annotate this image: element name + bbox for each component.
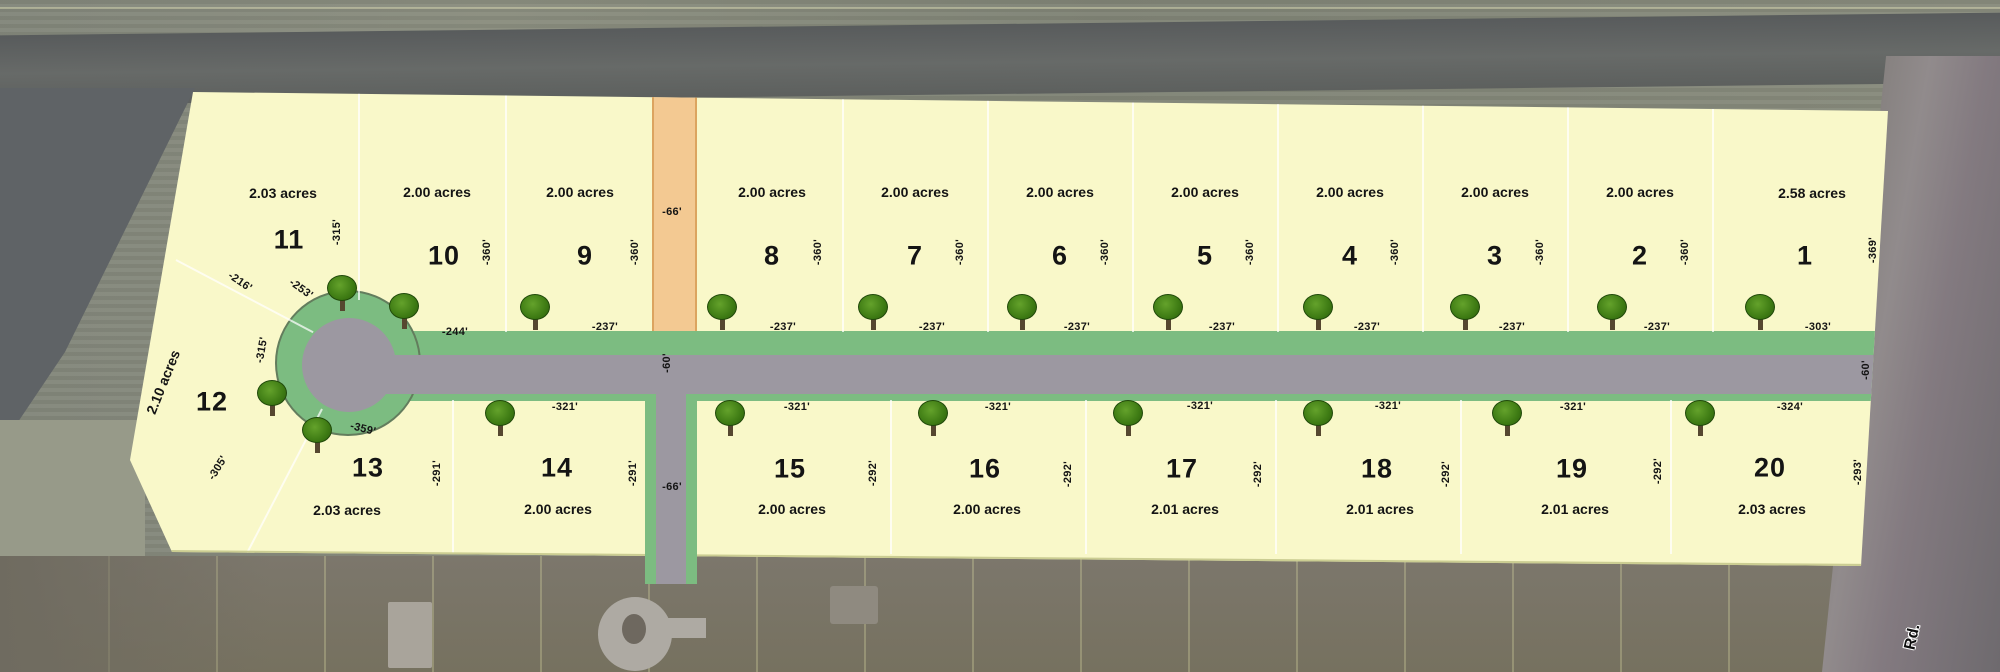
tree-canopy (257, 380, 287, 406)
tree-canopy (389, 293, 419, 319)
lot-19-frontage-dim: -321' (1560, 401, 1586, 413)
lot-17-acres: 2.01 acres (1151, 501, 1219, 517)
lot-18-number: 18 (1361, 454, 1393, 485)
lot-8-acres: 2.00 acres (738, 184, 806, 200)
plat-map: -66' -66' -60' -60' 12 2.10 acres -315' … (0, 0, 2000, 672)
field-boundary-line (0, 7, 2000, 9)
lot-15-number: 15 (774, 454, 806, 485)
lot-1-acres: 2.58 acres (1778, 185, 1846, 201)
lot-3-depth-dim: -360' (1534, 239, 1546, 265)
lot-20-number: 20 (1754, 453, 1786, 484)
lot-boundary-line (987, 90, 989, 332)
lot-1-depth-dim: -369' (1867, 237, 1879, 263)
lot-20-side-dim: -293' (1852, 459, 1864, 485)
aerial-building (622, 614, 646, 644)
lot-15-frontage-dim: -321' (784, 401, 810, 413)
tree-canopy (1597, 294, 1627, 320)
tree-canopy (858, 294, 888, 320)
pavement-width-dim: -60' (661, 353, 673, 373)
lot-5-frontage-dim: -237' (1209, 321, 1235, 333)
lot-6-depth-dim: -360' (1099, 239, 1111, 265)
lot-18-acres: 2.01 acres (1346, 501, 1414, 517)
lot-9-frontage-dim: -237' (592, 321, 618, 333)
lot-9-number: 9 (577, 241, 593, 272)
lot-1-number: 1 (1797, 241, 1813, 272)
lot-boundary-line (1275, 400, 1277, 554)
lot-5-depth-dim: -360' (1244, 239, 1256, 265)
lot-4-acres: 2.00 acres (1316, 184, 1384, 200)
lot-17-frontage-dim: -321' (1187, 400, 1213, 412)
aerial-building (830, 586, 878, 624)
lot-19-number: 19 (1556, 454, 1588, 485)
tree-canopy (327, 275, 357, 301)
lot-boundary-line (1460, 400, 1462, 554)
lot-14-acres: 2.00 acres (524, 501, 592, 517)
lot-6-frontage-dim: -237' (1064, 321, 1090, 333)
lot-5-number: 5 (1197, 241, 1213, 272)
tree-canopy (1450, 294, 1480, 320)
lot-18-frontage-dim: -321' (1375, 400, 1401, 412)
lot-boundary-line (452, 400, 454, 554)
lot-17-side-dim: -292' (1252, 461, 1264, 487)
lot-boundary-line (1567, 90, 1569, 332)
lot-13-side-dim: -291' (431, 460, 443, 486)
lot-15-acres: 2.00 acres (758, 501, 826, 517)
tree-canopy (1685, 400, 1715, 426)
lot-3-acres: 2.00 acres (1461, 184, 1529, 200)
lot-boundary-line (1670, 400, 1672, 554)
lot-boundary-line (842, 90, 844, 332)
lot-4-number: 4 (1342, 241, 1358, 272)
future-road-width-dim: -66' (662, 206, 682, 218)
lot-18-side-dim: -292' (1440, 461, 1452, 487)
lot-20-frontage-dim: -324' (1777, 401, 1803, 413)
aerial-building (388, 602, 432, 668)
lot-boundary-line (176, 259, 314, 333)
tree-canopy (1303, 400, 1333, 426)
lot-3-frontage-dim: -237' (1499, 321, 1525, 333)
lot-13-number: 13 (352, 453, 384, 484)
lot-boundary-line (1085, 400, 1087, 554)
lot-9-depth-dim: -360' (629, 239, 641, 265)
lot-16-side-dim: -292' (1062, 461, 1074, 487)
lot-boundary-line (1422, 90, 1424, 332)
lot-7-acres: 2.00 acres (881, 184, 949, 200)
lot-boundary-line (1132, 90, 1134, 332)
lot-1-frontage-dim: -303' (1805, 321, 1831, 333)
pavement-width-dim-east: -60' (1860, 360, 1872, 380)
lot-2-frontage-dim: -237' (1644, 321, 1670, 333)
tree-canopy (707, 294, 737, 320)
lot-10-depth-dim: -360' (481, 239, 493, 265)
tree-canopy (1153, 294, 1183, 320)
lot-boundary-line (890, 400, 892, 554)
lot-7-depth-dim: -360' (954, 239, 966, 265)
lot-13-acres: 2.03 acres (313, 502, 381, 518)
tree-canopy (1007, 294, 1037, 320)
tree-canopy (485, 400, 515, 426)
south-road-width-dim: -66' (662, 481, 682, 493)
lot-12-number: 12 (196, 387, 228, 418)
lot-10-number: 10 (428, 241, 460, 272)
lot-boundary-line (1712, 90, 1714, 332)
aerial-bottom-field (0, 556, 2000, 672)
lot-2-depth-dim: -360' (1679, 239, 1691, 265)
lot-17-number: 17 (1166, 454, 1198, 485)
tree-canopy (302, 417, 332, 443)
lot-5-acres: 2.00 acres (1171, 184, 1239, 200)
lot-4-frontage-dim: -237' (1354, 321, 1380, 333)
lot-7-frontage-dim: -237' (919, 321, 945, 333)
lot-19-acres: 2.01 acres (1541, 501, 1609, 517)
lot-14-number: 14 (541, 453, 573, 484)
lot-16-frontage-dim: -321' (985, 401, 1011, 413)
tree-canopy (1492, 400, 1522, 426)
lot-19-side-dim: -292' (1652, 458, 1664, 484)
lot-16-number: 16 (969, 454, 1001, 485)
lot-8-depth-dim: -360' (812, 239, 824, 265)
tree-canopy (1113, 400, 1143, 426)
lot-14-frontage-dim: -321' (552, 401, 578, 413)
lot-14-side-dim: -291' (627, 460, 639, 486)
lot-boundary-line (358, 90, 360, 300)
lot-15-side-dim: -292' (867, 460, 879, 486)
aerial-left-field (0, 420, 145, 570)
lot-11-number: 11 (274, 225, 305, 256)
tree-canopy (715, 400, 745, 426)
lot-11-depth-dim: -315' (331, 219, 343, 245)
lot-8-frontage-dim: -237' (770, 321, 796, 333)
lot-20-acres: 2.03 acres (1738, 501, 1806, 517)
aerial-bottom-road (0, 556, 270, 672)
lot-16-acres: 2.00 acres (953, 501, 1021, 517)
lot-10-acres: 2.00 acres (403, 184, 471, 200)
lot-10-frontage-dim: -244' (442, 326, 468, 338)
street-pavement (346, 355, 1888, 394)
tree-canopy (918, 400, 948, 426)
lot-6-number: 6 (1052, 241, 1068, 272)
tree-canopy (520, 294, 550, 320)
lot-9-acres: 2.00 acres (546, 184, 614, 200)
aerial-driveway-arm (668, 618, 706, 638)
lot-3-number: 3 (1487, 241, 1503, 272)
lot-11-acres: 2.03 acres (249, 185, 317, 201)
lot-7-number: 7 (907, 241, 923, 272)
tree-canopy (1745, 294, 1775, 320)
lot-boundary-line (1277, 90, 1279, 332)
lot-2-acres: 2.00 acres (1606, 184, 1674, 200)
lot-2-number: 2 (1632, 241, 1648, 272)
lot-boundary-line (505, 90, 507, 332)
tree-canopy (1303, 294, 1333, 320)
lot-4-depth-dim: -360' (1389, 239, 1401, 265)
lot-8-number: 8 (764, 241, 780, 272)
lot-6-acres: 2.00 acres (1026, 184, 1094, 200)
